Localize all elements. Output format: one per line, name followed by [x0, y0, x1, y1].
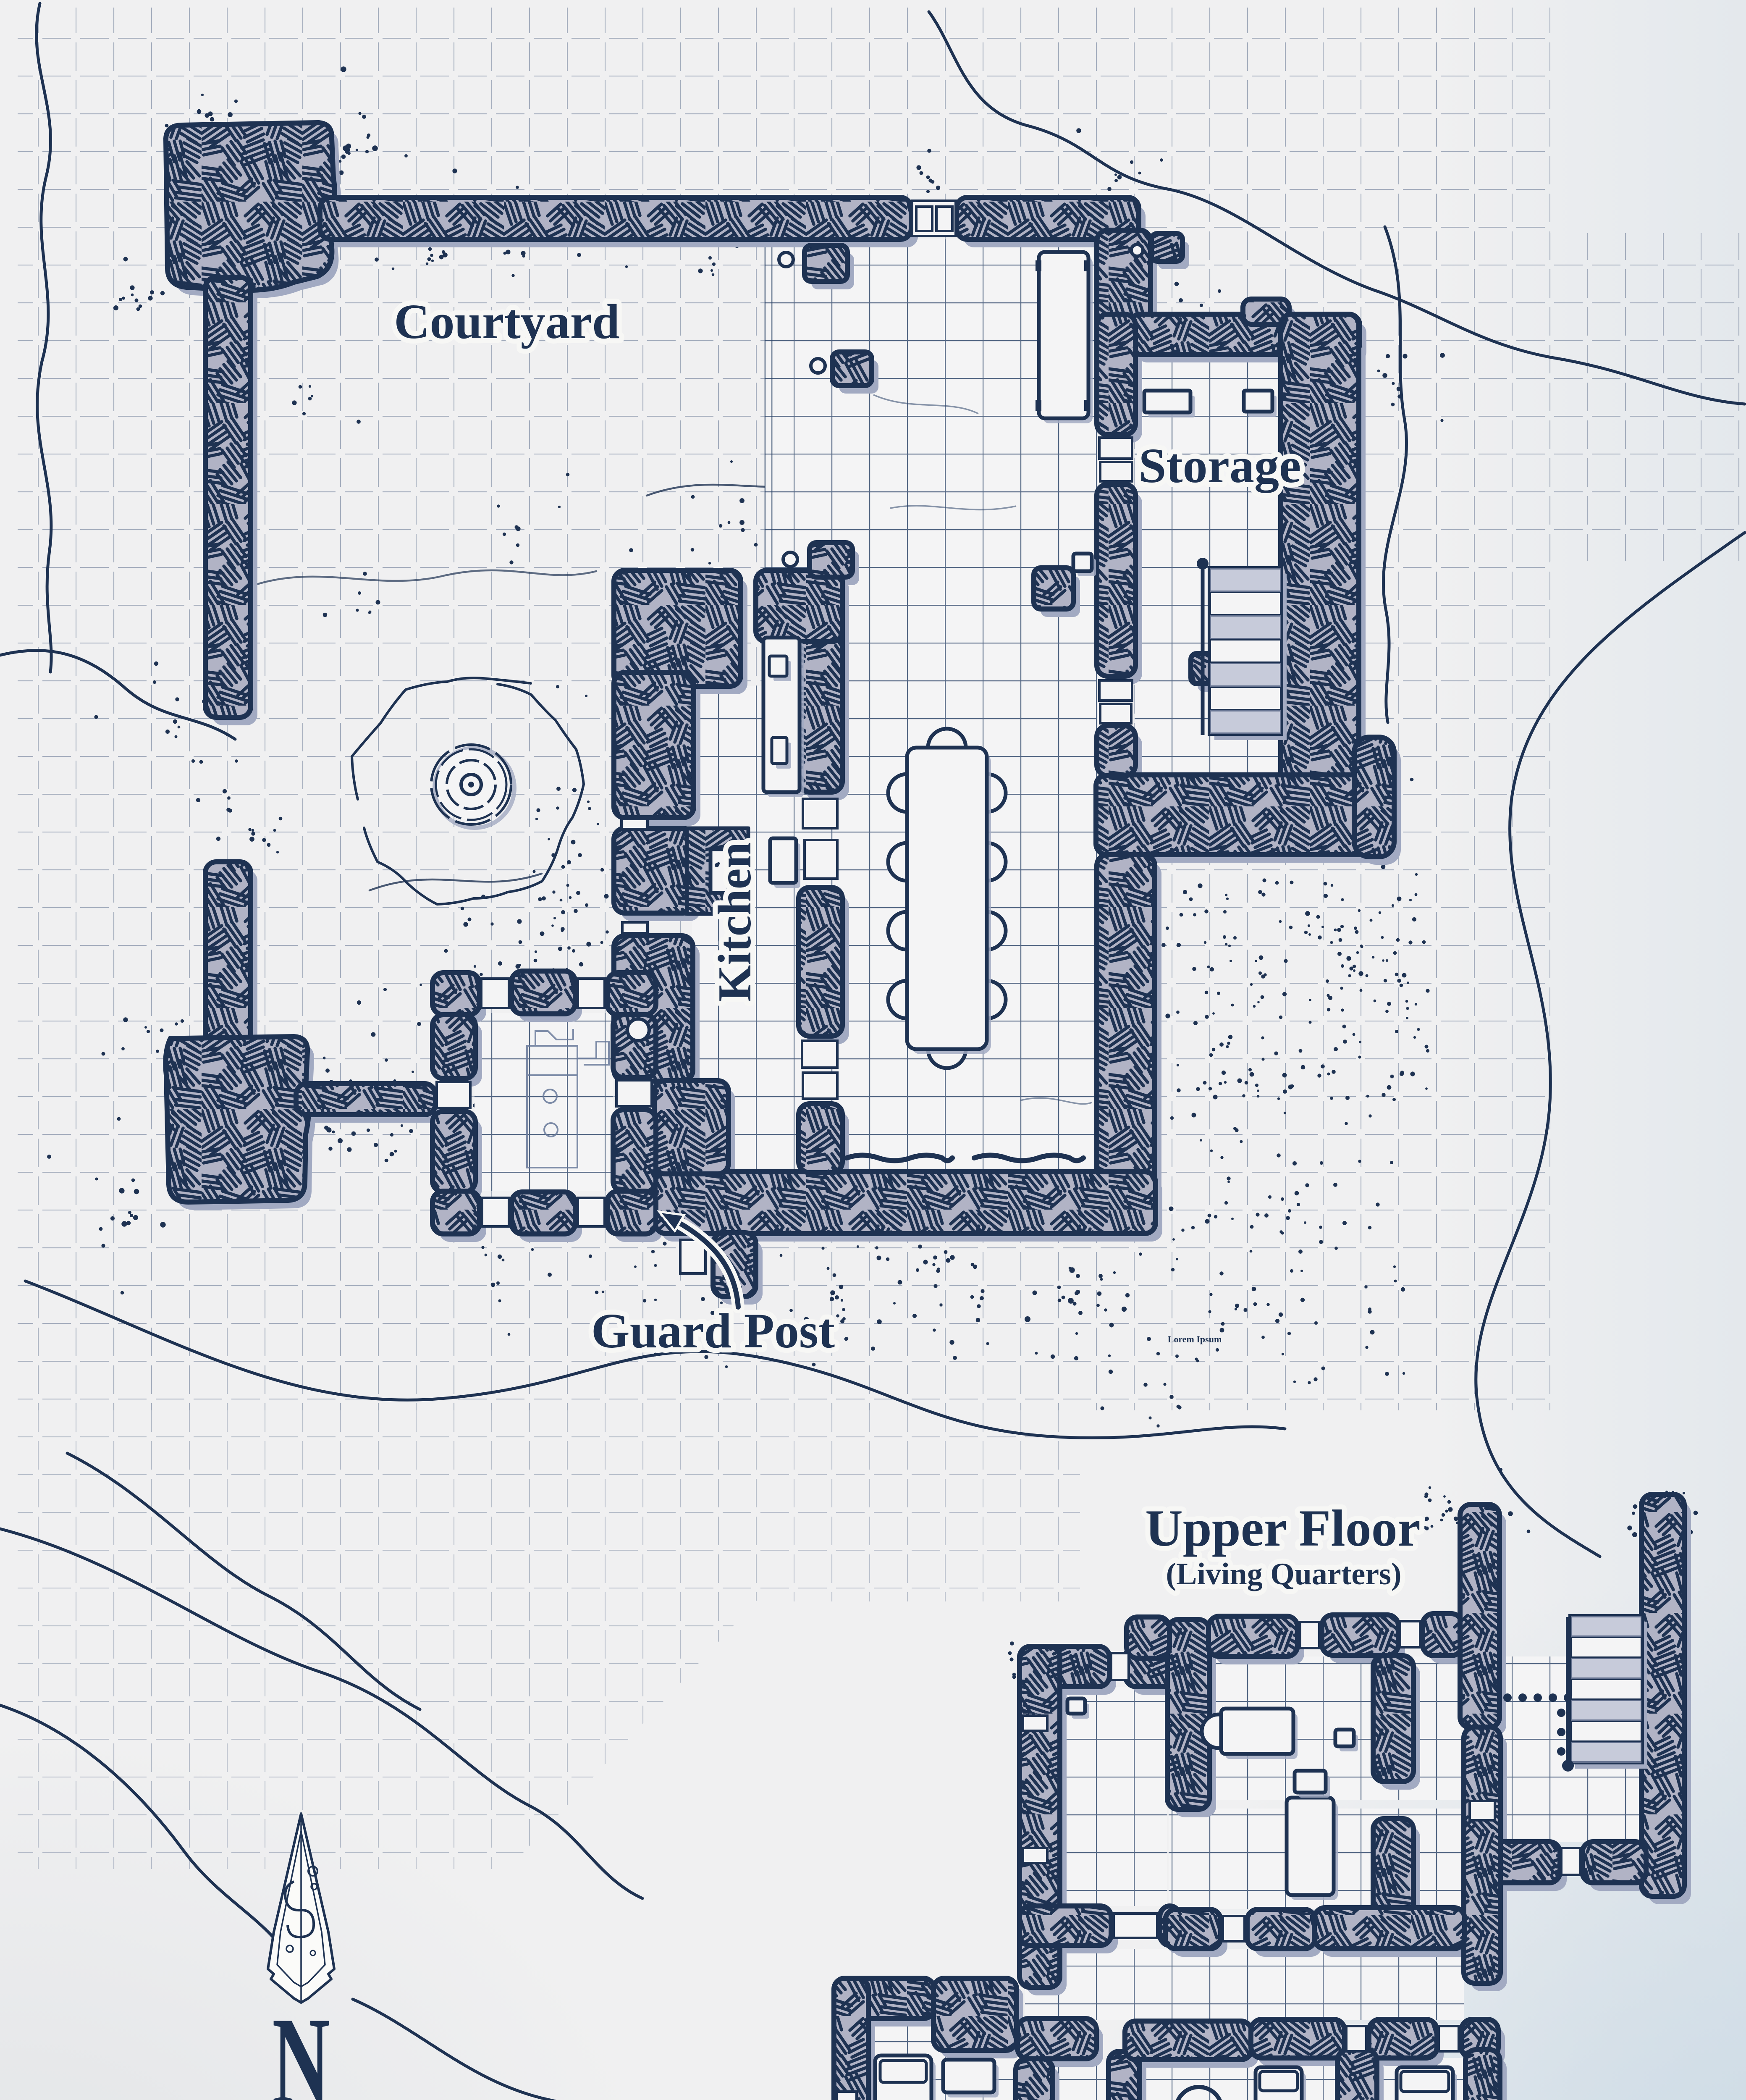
svg-text:Courtyard: Courtyard [394, 294, 620, 349]
svg-text:N: N [272, 1991, 330, 2100]
svg-text:Lorem Ipsum: Lorem Ipsum [1168, 1334, 1222, 1344]
svg-text:Upper Floor: Upper Floor [1145, 1499, 1421, 1557]
svg-text:Guard Post: Guard Post [591, 1303, 835, 1358]
svg-text:(Living Quarters): (Living Quarters) [1166, 1557, 1401, 1591]
svg-text:Storage: Storage [1139, 438, 1301, 493]
svg-text:Kitchen: Kitchen [709, 842, 761, 1002]
